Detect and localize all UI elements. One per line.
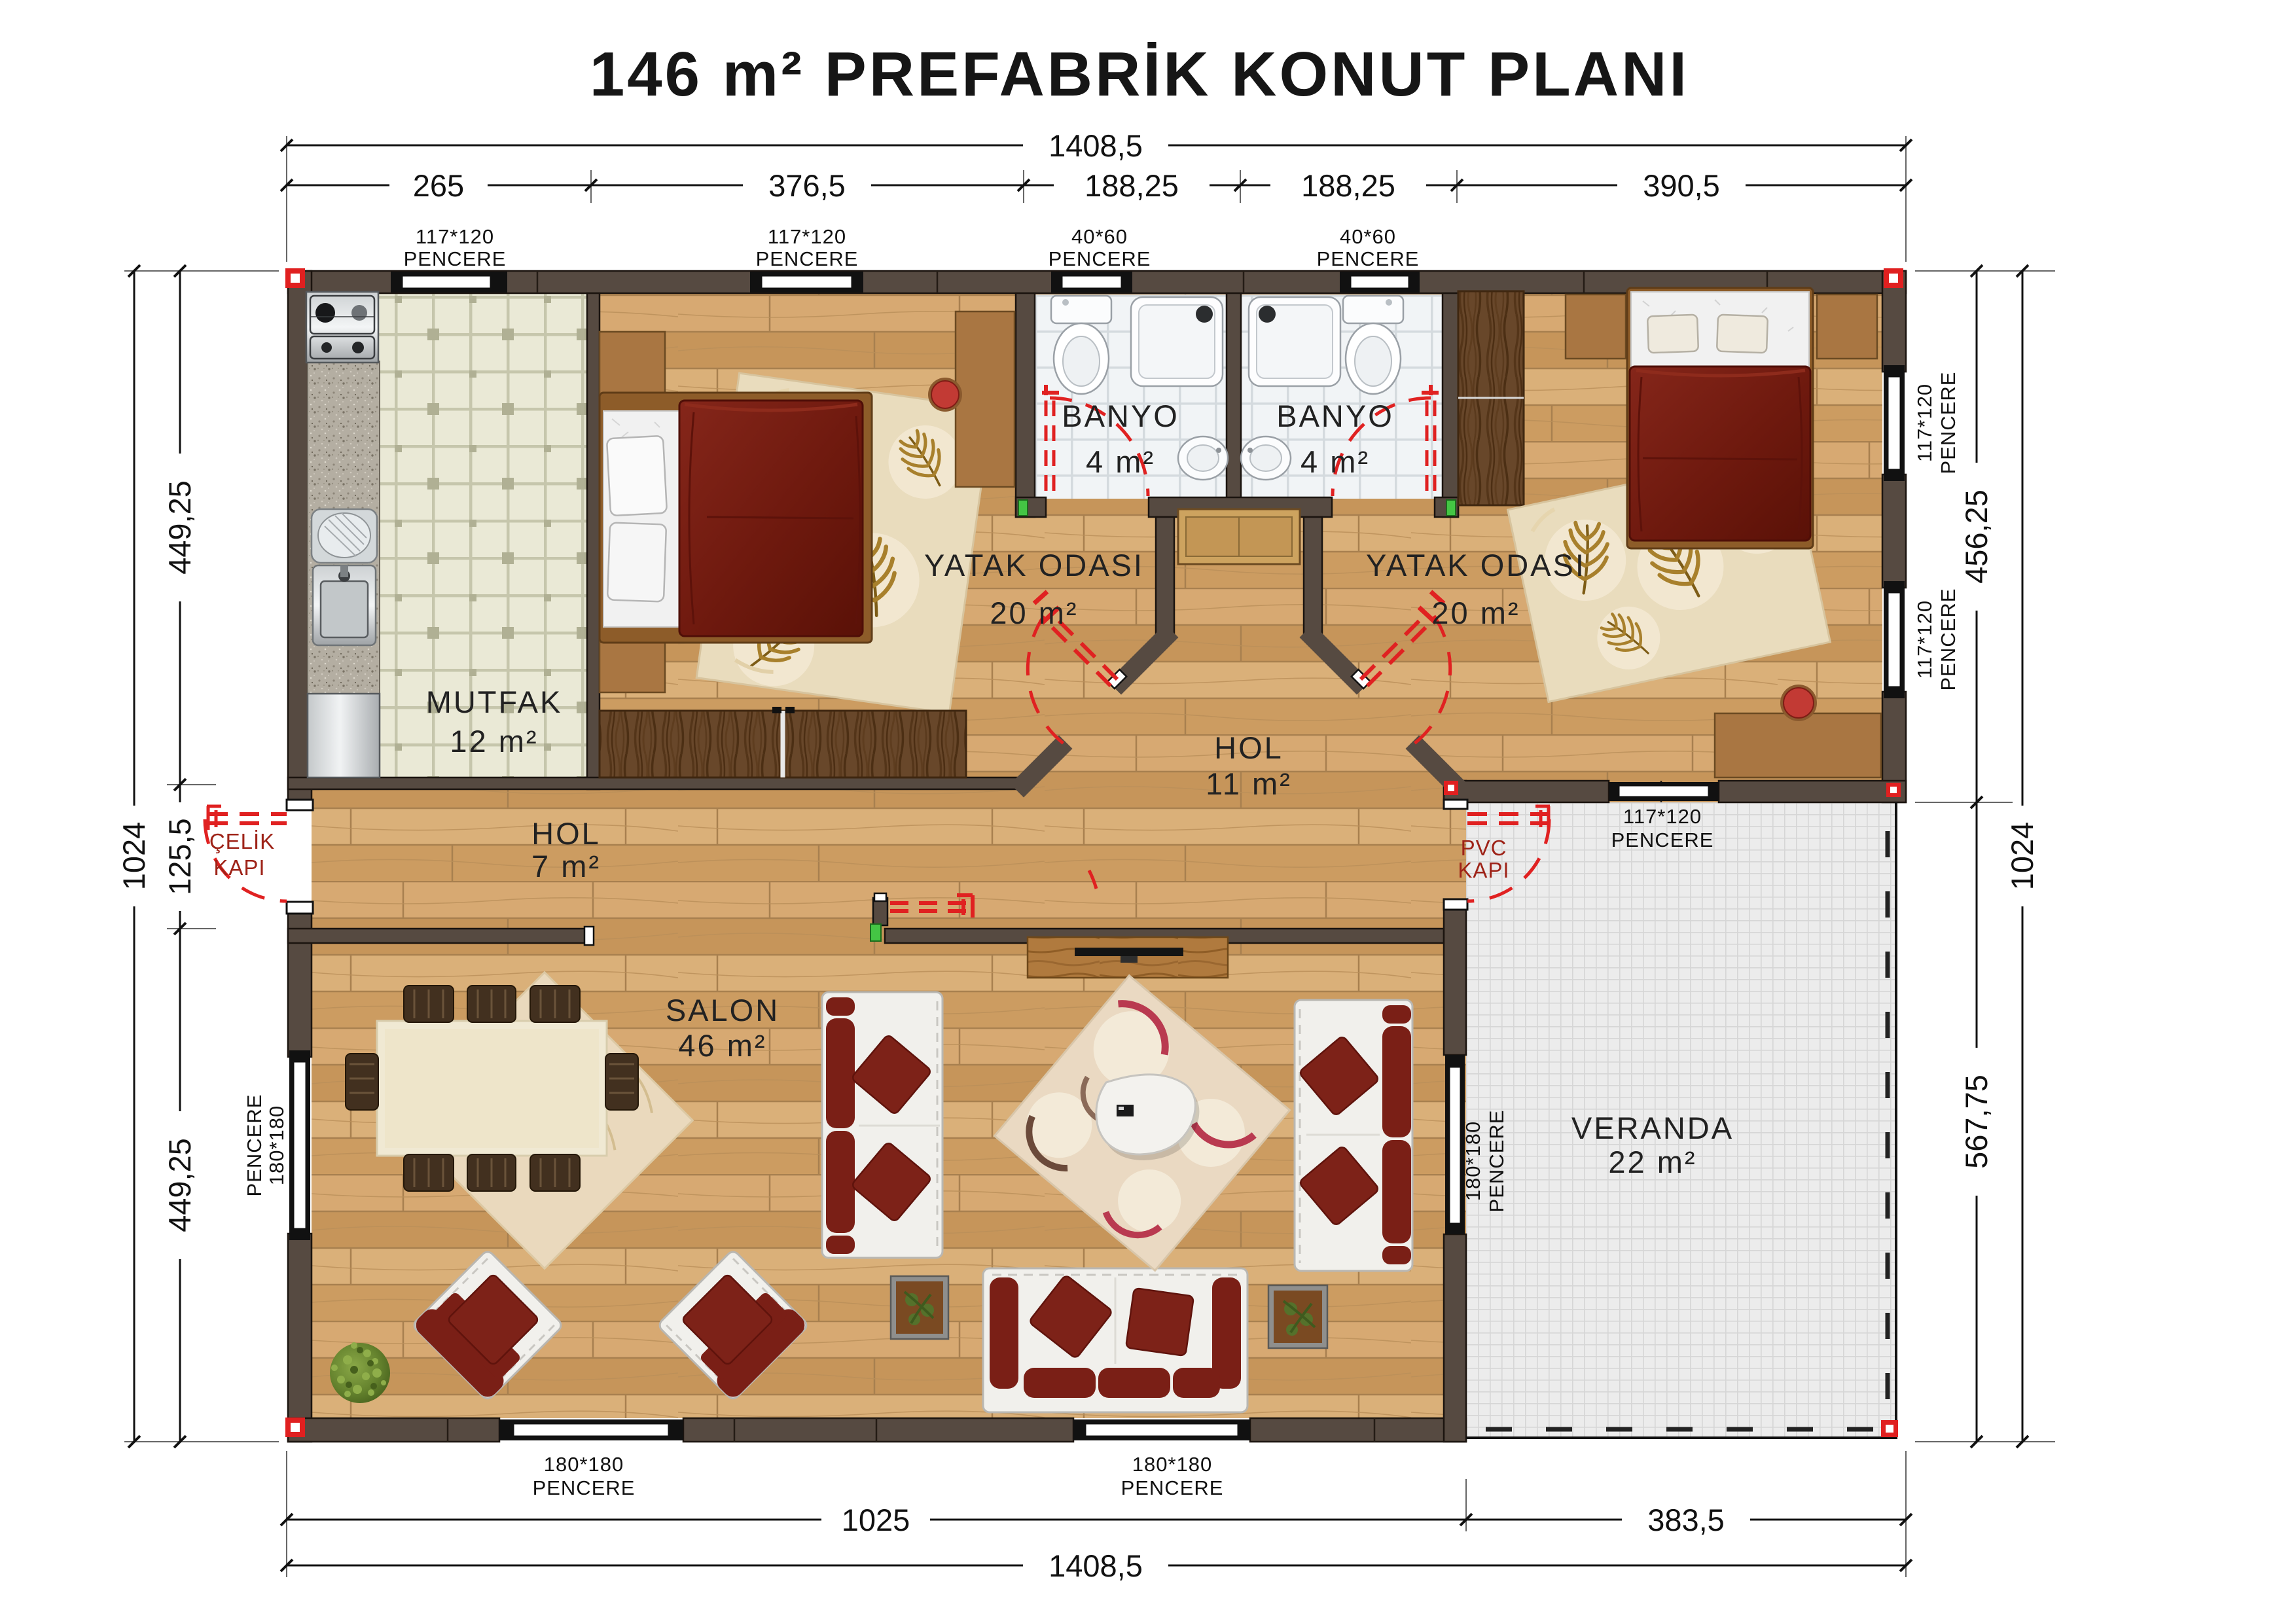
svg-text:4 m²: 4 m² (1086, 444, 1155, 479)
svg-text:567,75: 567,75 (1959, 1075, 1994, 1169)
svg-text:PENCERE: PENCERE (756, 247, 859, 270)
svg-text:1025: 1025 (842, 1503, 910, 1537)
svg-text:PENCERE: PENCERE (1937, 372, 1960, 474)
svg-text:PENCERE: PENCERE (1611, 829, 1714, 851)
svg-text:180*180: 180*180 (265, 1105, 288, 1186)
svg-text:117*120: 117*120 (1913, 600, 1936, 679)
svg-text:1024: 1024 (117, 822, 151, 891)
svg-text:7 m²: 7 m² (531, 849, 601, 883)
svg-text:PENCERE: PENCERE (404, 247, 507, 270)
svg-text:PENCERE: PENCERE (1317, 247, 1420, 270)
svg-text:YATAK ODASI: YATAK ODASI (924, 548, 1144, 582)
svg-text:SALON: SALON (666, 993, 780, 1027)
svg-text:1024: 1024 (2005, 822, 2039, 891)
svg-text:HOL: HOL (531, 816, 601, 851)
svg-text:VERANDA: VERANDA (1571, 1111, 1734, 1145)
svg-text:40*60: 40*60 (1071, 225, 1128, 248)
svg-text:265: 265 (413, 168, 464, 203)
svg-text:12 m²: 12 m² (450, 724, 538, 758)
svg-text:11 m²: 11 m² (1206, 766, 1292, 801)
svg-text:180*180: 180*180 (544, 1453, 624, 1476)
svg-text:KAPI: KAPI (1458, 858, 1509, 882)
svg-text:456,25: 456,25 (1959, 490, 1994, 584)
svg-text:PENCERE: PENCERE (533, 1476, 636, 1499)
svg-text:KAPI: KAPI (213, 855, 265, 880)
svg-text:1408,5: 1408,5 (1049, 1548, 1143, 1583)
svg-text:BANYO: BANYO (1062, 399, 1179, 433)
svg-text:449,25: 449,25 (162, 1138, 197, 1232)
svg-text:383,5: 383,5 (1647, 1503, 1725, 1537)
svg-text:188,25: 188,25 (1301, 168, 1395, 203)
svg-text:20 m²: 20 m² (990, 596, 1078, 630)
svg-text:449,25: 449,25 (162, 480, 197, 575)
svg-text:PENCERE: PENCERE (1937, 588, 1960, 691)
svg-text:46 m²: 46 m² (678, 1028, 766, 1063)
svg-text:117*120: 117*120 (416, 225, 494, 248)
svg-text:188,25: 188,25 (1085, 168, 1179, 203)
svg-text:PENCERE: PENCERE (1485, 1110, 1508, 1213)
svg-text:PENCERE: PENCERE (1121, 1476, 1224, 1499)
svg-text:376,5: 376,5 (768, 168, 846, 203)
svg-text:4 m²: 4 m² (1300, 444, 1370, 479)
svg-text:HOL: HOL (1214, 730, 1283, 765)
svg-text:BANYO: BANYO (1276, 399, 1394, 433)
svg-text:117*120: 117*120 (1623, 805, 1702, 828)
svg-text:1408,5: 1408,5 (1049, 128, 1143, 163)
svg-text:MUTFAK: MUTFAK (426, 685, 563, 719)
svg-text:117*120: 117*120 (1913, 383, 1936, 462)
svg-text:20 m²: 20 m² (1431, 596, 1520, 630)
svg-text:180*180: 180*180 (1132, 1453, 1213, 1476)
svg-text:390,5: 390,5 (1643, 168, 1720, 203)
svg-text:YATAK ODASI: YATAK ODASI (1366, 548, 1586, 582)
svg-text:146 m² PREFABRİK KONUT PLANI: 146 m² PREFABRİK KONUT PLANI (590, 39, 1689, 109)
svg-text:PENCERE: PENCERE (1049, 247, 1151, 270)
svg-text:ÇELİK: ÇELİK (209, 829, 275, 853)
svg-text:PENCERE: PENCERE (243, 1094, 266, 1197)
svg-text:180*180: 180*180 (1462, 1121, 1484, 1202)
svg-text:40*60: 40*60 (1340, 225, 1396, 248)
svg-text:117*120: 117*120 (768, 225, 846, 248)
svg-text:22 m²: 22 m² (1608, 1145, 1696, 1179)
svg-text:PVC: PVC (1461, 836, 1507, 860)
svg-text:125,5: 125,5 (162, 818, 197, 895)
